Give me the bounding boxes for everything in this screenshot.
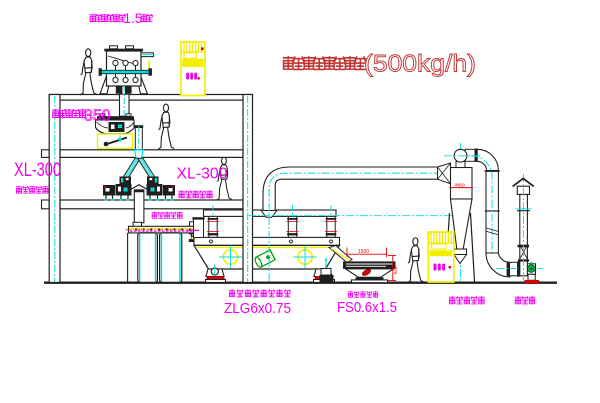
svg-text:XL-300: XL-300 [14, 160, 61, 181]
svg-text:(500kg/h): (500kg/h) [364, 51, 476, 78]
svg-text:FS0.6x1.5: FS0.6x1.5 [337, 299, 397, 316]
svg-text:1.5: 1.5 [124, 11, 143, 26]
svg-text:350: 350 [84, 108, 111, 125]
svg-text:XL-300: XL-300 [177, 166, 228, 183]
svg-text:Φ600: Φ600 [455, 183, 466, 188]
svg-text:540: 540 [393, 266, 399, 274]
svg-text:ZLG6x0.75: ZLG6x0.75 [224, 300, 291, 317]
svg-text:1500: 1500 [358, 249, 369, 255]
